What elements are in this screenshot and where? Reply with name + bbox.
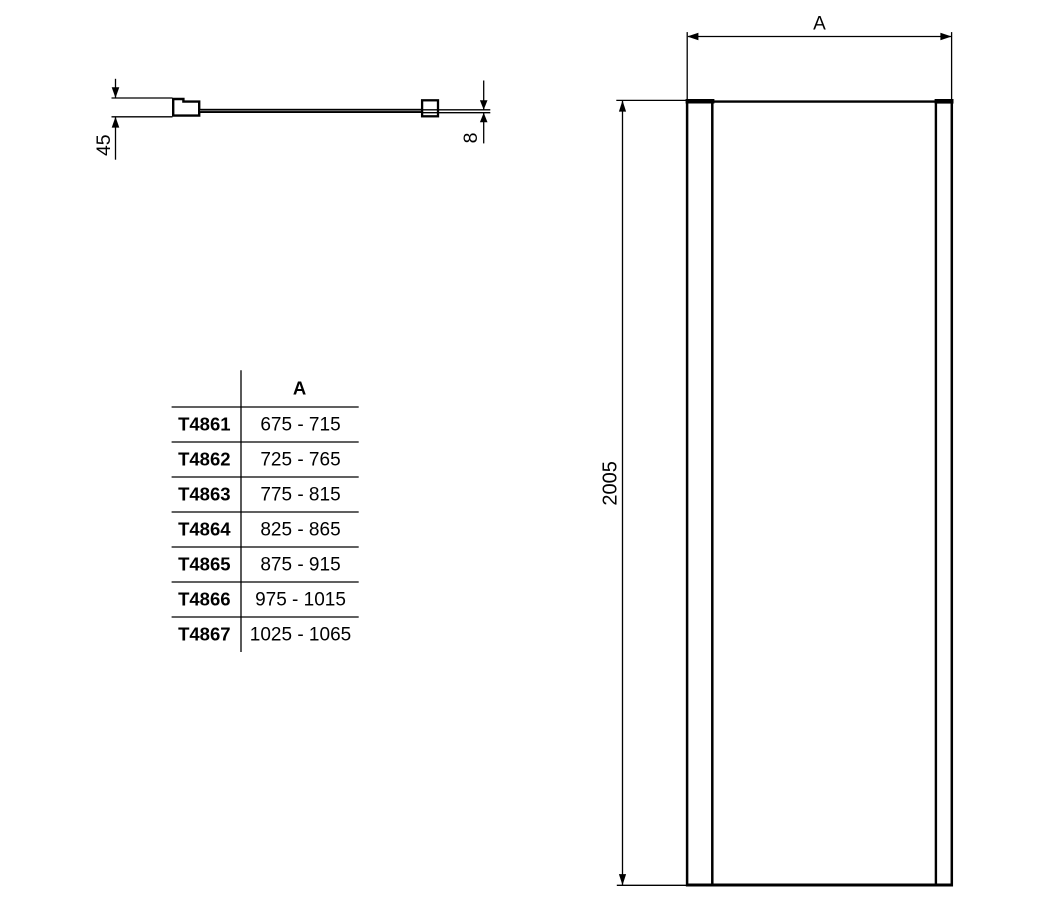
svg-text:975 - 1015: 975 - 1015 <box>255 589 346 610</box>
svg-text:T4862: T4862 <box>178 448 230 469</box>
svg-text:T4861: T4861 <box>178 413 230 434</box>
svg-text:725 - 765: 725 - 765 <box>260 449 340 470</box>
svg-text:825 - 865: 825 - 865 <box>260 519 340 540</box>
svg-text:875 - 915: 875 - 915 <box>260 554 340 575</box>
svg-text:T4867: T4867 <box>178 623 230 644</box>
svg-text:T4864: T4864 <box>178 518 231 539</box>
svg-text:T4866: T4866 <box>178 588 230 609</box>
svg-text:1025 - 1065: 1025 - 1065 <box>250 624 351 645</box>
svg-text:8: 8 <box>460 133 482 144</box>
svg-text:45: 45 <box>93 134 115 156</box>
svg-text:T4863: T4863 <box>178 483 230 504</box>
svg-text:A: A <box>813 13 826 34</box>
svg-text:675 - 715: 675 - 715 <box>260 414 340 435</box>
svg-text:2005: 2005 <box>600 461 622 506</box>
svg-text:A: A <box>293 378 306 399</box>
svg-text:775 - 815: 775 - 815 <box>260 484 340 505</box>
svg-text:T4865: T4865 <box>178 553 230 574</box>
